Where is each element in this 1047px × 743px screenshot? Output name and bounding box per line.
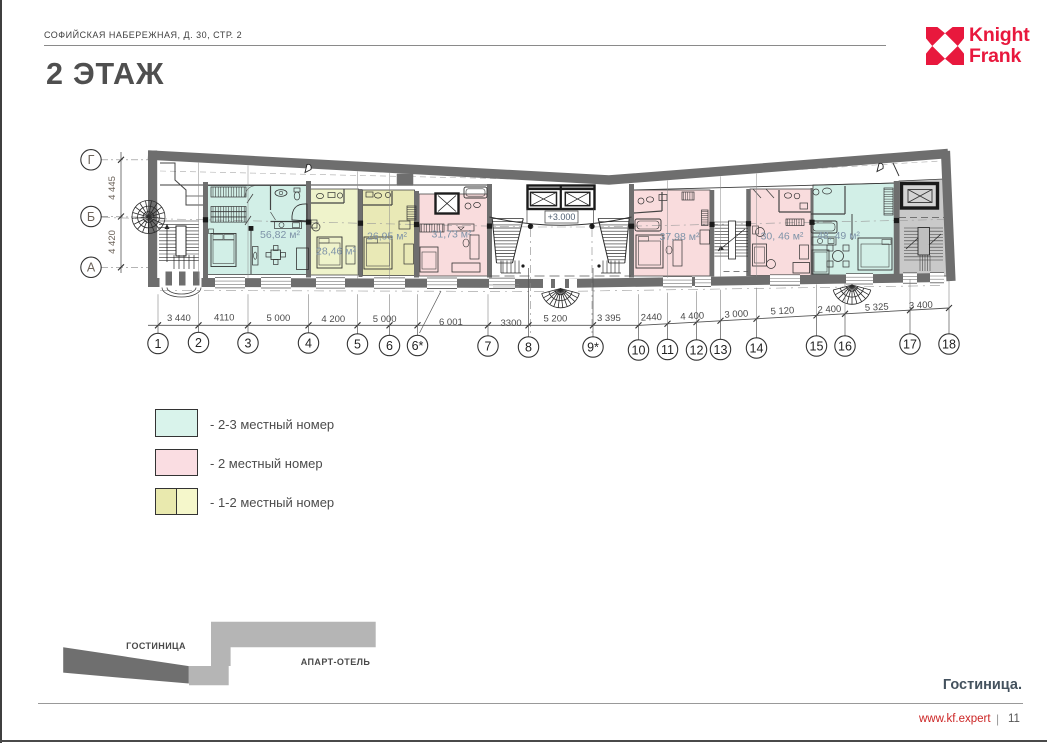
svg-text:12: 12 — [690, 343, 704, 357]
svg-text:13: 13 — [714, 343, 728, 357]
svg-text:3300: 3300 — [501, 318, 522, 329]
svg-text:56,82 м²: 56,82 м² — [260, 229, 300, 241]
svg-text:30, 46 м²: 30, 46 м² — [761, 231, 804, 243]
svg-text:4: 4 — [305, 336, 312, 350]
svg-text:18: 18 — [942, 337, 956, 351]
svg-text:1: 1 — [155, 337, 162, 351]
svg-text:А: А — [87, 261, 96, 275]
svg-text:6: 6 — [386, 339, 393, 353]
svg-text:4 445: 4 445 — [107, 176, 118, 200]
svg-text:2: 2 — [195, 336, 202, 350]
svg-text:14: 14 — [750, 341, 764, 355]
svg-text:15: 15 — [810, 339, 824, 353]
svg-text:5 000: 5 000 — [267, 313, 291, 324]
svg-text:2 400: 2 400 — [817, 304, 841, 316]
svg-text:3 395: 3 395 — [597, 313, 621, 324]
svg-text:10: 10 — [632, 343, 646, 357]
svg-text:5 200: 5 200 — [544, 314, 568, 325]
svg-text:3 000: 3 000 — [724, 308, 748, 320]
svg-text:8: 8 — [525, 340, 532, 354]
svg-text:31,73 м²: 31,73 м² — [432, 229, 472, 241]
svg-text:3 400: 3 400 — [909, 300, 933, 312]
svg-text:4 400: 4 400 — [680, 310, 704, 322]
svg-text:11: 11 — [661, 343, 674, 357]
svg-text:+3.000: +3.000 — [548, 212, 576, 222]
svg-text:28,46 м²: 28,46 м² — [316, 246, 356, 258]
svg-text:ГОСТИНИЦА: ГОСТИНИЦА — [126, 641, 186, 651]
svg-text:Б: Б — [87, 210, 95, 224]
svg-text:4 420: 4 420 — [107, 230, 118, 254]
svg-text:3: 3 — [245, 336, 252, 350]
svg-text:26,95 м²: 26,95 м² — [367, 231, 407, 243]
svg-text:2440: 2440 — [641, 312, 663, 324]
svg-text:37,98 м²: 37,98 м² — [660, 231, 700, 243]
svg-text:3 440: 3 440 — [167, 313, 191, 324]
svg-text:48, 49 м²: 48, 49 м² — [817, 230, 860, 242]
svg-text:6 001: 6 001 — [439, 317, 463, 328]
svg-text:16: 16 — [838, 339, 852, 353]
svg-text:Г: Г — [88, 153, 95, 167]
svg-text:17: 17 — [903, 337, 917, 351]
svg-text:5 325: 5 325 — [865, 302, 889, 314]
svg-text:5 000: 5 000 — [373, 314, 397, 325]
svg-text:4110: 4110 — [214, 312, 234, 323]
svg-text:9*: 9* — [587, 340, 599, 354]
svg-text:4 200: 4 200 — [321, 314, 345, 325]
svg-text:5: 5 — [354, 337, 361, 351]
svg-text:6*: 6* — [412, 339, 424, 353]
svg-text:7: 7 — [485, 339, 492, 353]
svg-text:АПАРТ-ОТЕЛЬ: АПАРТ-ОТЕЛЬ — [301, 657, 371, 667]
svg-text:5 120: 5 120 — [770, 305, 794, 317]
